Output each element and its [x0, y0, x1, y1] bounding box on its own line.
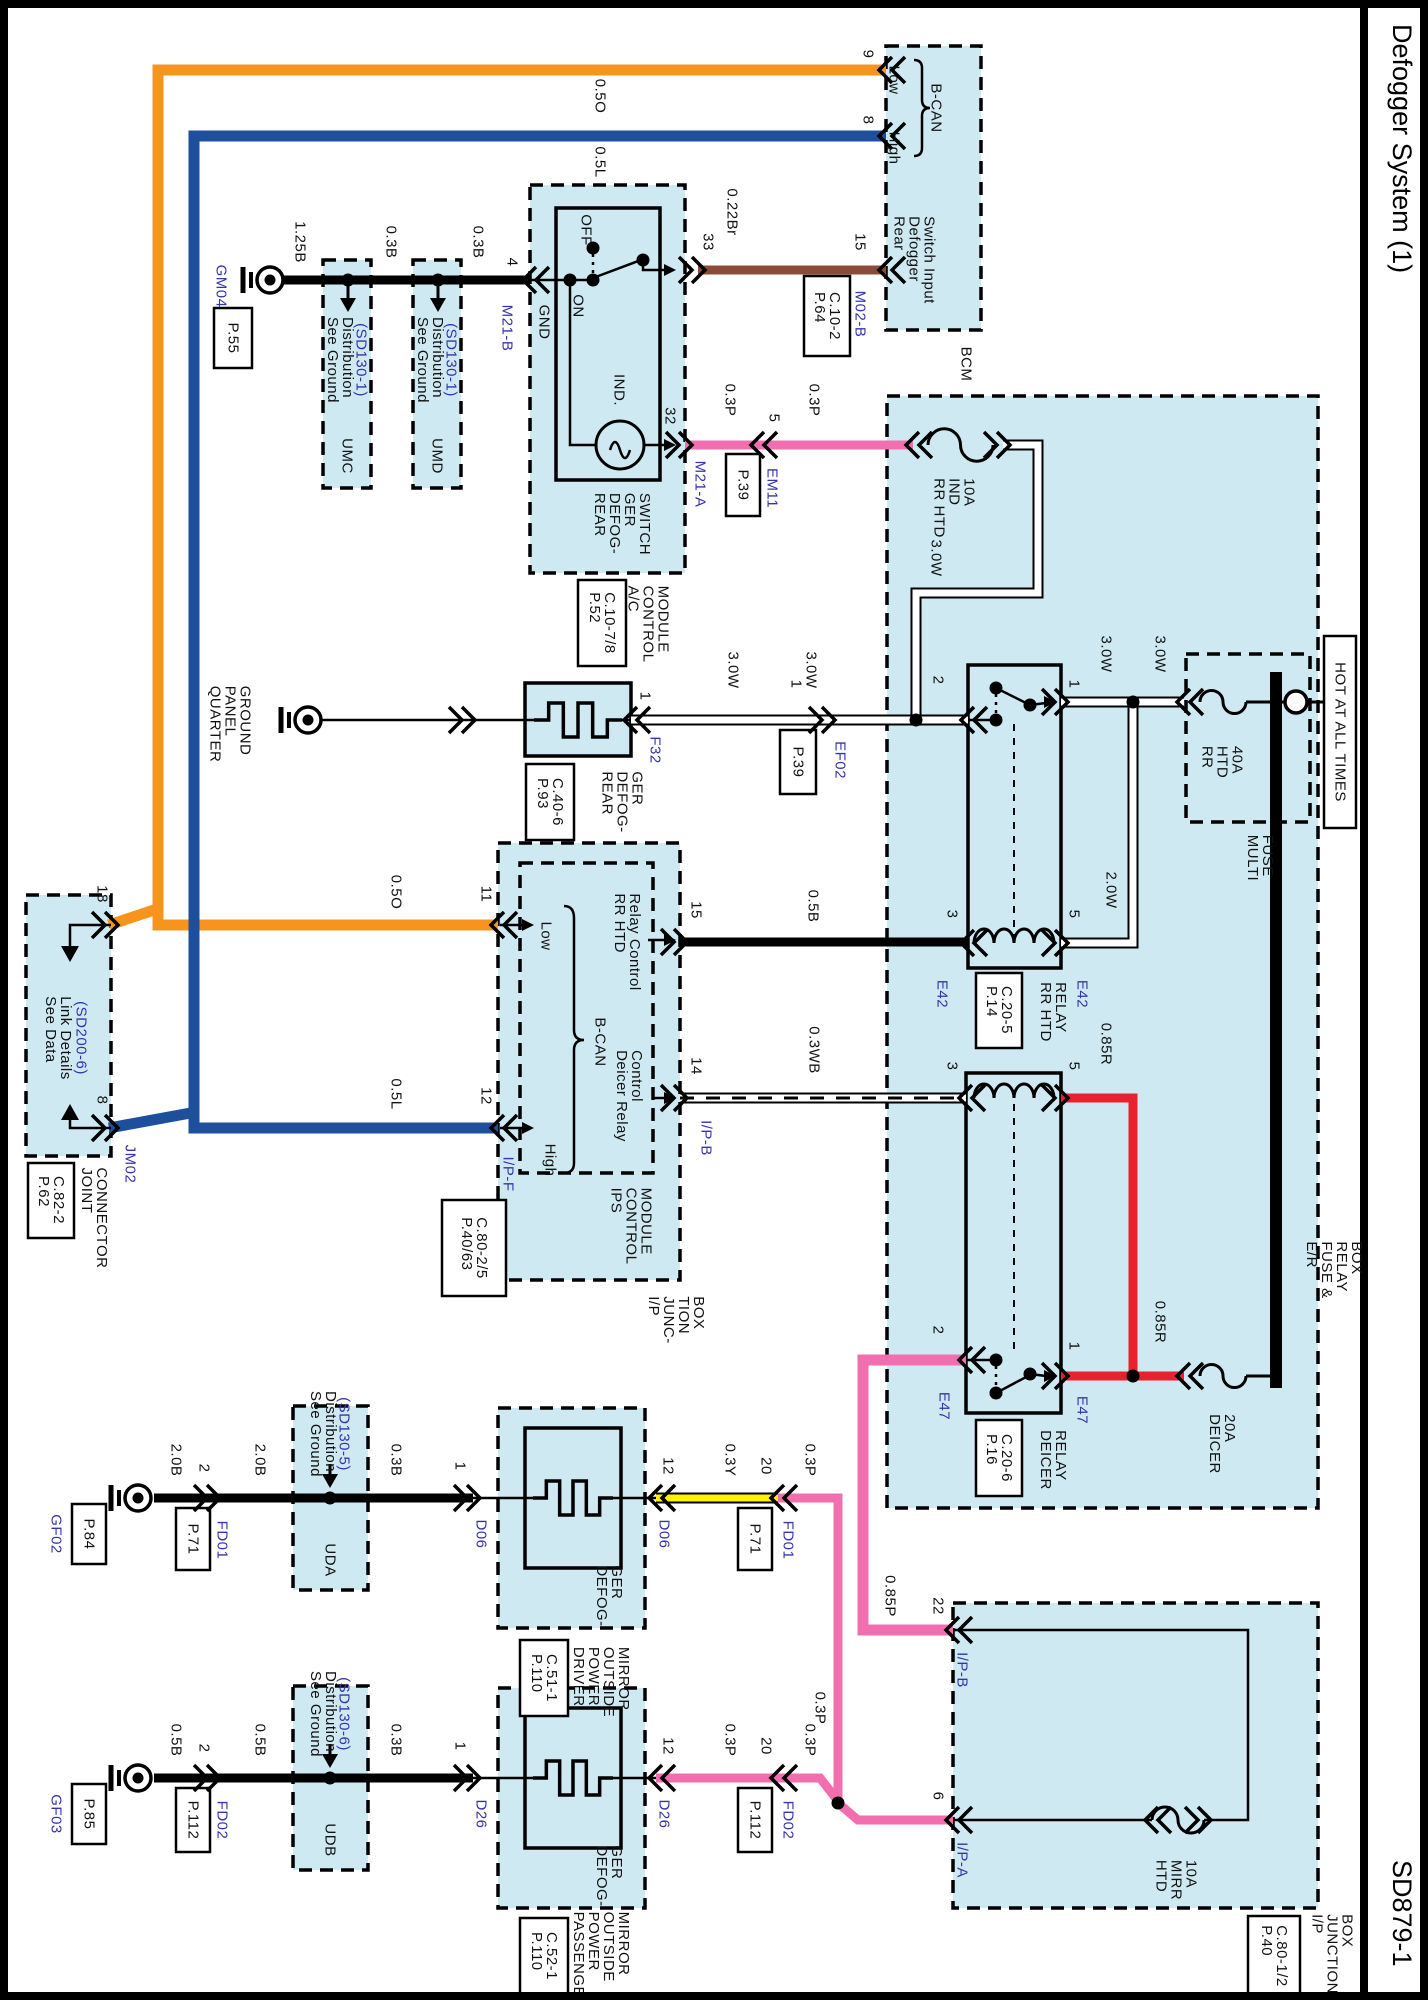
- diagram-label: M21-B: [500, 305, 515, 352]
- diagram-label: BCM: [959, 347, 974, 382]
- junction-dot: [990, 714, 1003, 727]
- diagram-label: GF03: [49, 1794, 64, 1834]
- diagram-label: I/P JUNC- TION BOX: [646, 1296, 706, 1344]
- diagram-label: HOT AT ALL TIMES: [1333, 662, 1348, 802]
- bus-terminal: [1285, 691, 1307, 713]
- diagram-label: 3.0W: [1099, 635, 1114, 672]
- diagram-label: 3.0W: [1153, 635, 1168, 672]
- diagram-label: 12: [661, 1737, 676, 1755]
- diagram-label: 20: [759, 1457, 774, 1475]
- ip-junction-box-2: [953, 1603, 1318, 1908]
- diagram-label: 8: [861, 116, 876, 125]
- diagram-label: 0.5B: [806, 890, 821, 923]
- diagram-label: GM04: [214, 265, 229, 308]
- diagram-label: See Ground Distribution: [308, 1391, 338, 1477]
- diagram-label: 2: [931, 676, 946, 685]
- junction-dot: [1127, 1370, 1140, 1383]
- diagram-label: 3.0W: [929, 539, 944, 576]
- diagram-label: UMC: [340, 438, 355, 474]
- diagram-label: FD02: [781, 1801, 796, 1840]
- diagram-label: 0.85R: [1099, 1023, 1114, 1066]
- diagram-label: (SD130-5): [337, 1397, 352, 1471]
- diagram-label: EF02: [833, 741, 848, 779]
- diagram-label: 6: [931, 1792, 946, 1801]
- diagram-label: E42: [1075, 980, 1090, 1008]
- diagram-label: 0.3B: [389, 1724, 404, 1757]
- diagram-label: IPS CONTROL MODULE: [609, 1188, 654, 1265]
- diagram-label: P.39: [791, 747, 806, 778]
- diagram-label: 5: [1067, 910, 1082, 919]
- diagram-label: 0.3P: [813, 1692, 828, 1725]
- er-fuse-relay-box: [887, 396, 1318, 1508]
- diagram-label: P.110 C.52-1: [529, 1932, 559, 1980]
- diagram-label: 3: [945, 910, 960, 919]
- junction-dot: [342, 274, 355, 287]
- diagram-label: B-CAN: [593, 1017, 608, 1066]
- diagram-label: RR HTD Relay Control: [612, 893, 642, 990]
- diagram-label: EM11: [765, 468, 780, 508]
- diagram-label: REAR DEFOG- GER SWITCH: [592, 493, 652, 555]
- diagram-label: See Ground Distribution: [308, 1671, 338, 1757]
- diagram-label: 3: [945, 1062, 960, 1071]
- diagram-label: 20: [759, 1737, 774, 1755]
- diagram-label: PASSENGER POWER OUTSIDE MIRROR: [571, 1912, 631, 2000]
- diagram-label: 0.3B: [384, 226, 399, 259]
- diagram-label: 1: [453, 1742, 468, 1751]
- diagram-label: 1.25B: [293, 221, 308, 263]
- diagram-label: P.14 C.20-5: [984, 986, 1014, 1034]
- diagram-label: P.71: [186, 1524, 201, 1555]
- diagram-label: (SD130-1): [444, 323, 459, 397]
- junction-dot: [1024, 699, 1037, 712]
- diagram-label: (SD130-1): [354, 323, 369, 397]
- diagram-label: UMD: [430, 438, 445, 474]
- diagram-label: 0.3B: [389, 1444, 404, 1477]
- diagram-label: P.112: [186, 1801, 201, 1840]
- diagram-label: 0.5L: [593, 146, 608, 177]
- diagram-label: I/P-F: [501, 1157, 516, 1192]
- diagram-label: P.85: [82, 1799, 97, 1830]
- ground-quarter-panel-dot: [303, 715, 314, 726]
- diagram-label: 0.5B: [169, 1724, 184, 1757]
- diagram-label: 3.0W: [726, 651, 741, 688]
- diagram-label: See Data Link Details: [43, 996, 73, 1080]
- diagram-label: 1: [789, 680, 804, 689]
- diagram-label: See Ground Distribution: [325, 317, 355, 403]
- diagram-label: RR HTD IND 10A: [932, 478, 977, 538]
- diagram-label: FD01: [781, 1521, 796, 1560]
- diagram-label: DEFOG- GER: [594, 1845, 624, 1906]
- diagram-label: 2.0B: [169, 1444, 184, 1477]
- diagram-label: RR HTD RELAY: [1038, 982, 1068, 1042]
- diagram-label: 5: [1067, 1062, 1082, 1071]
- ground-gf03-dot: [133, 1773, 144, 1784]
- diagram-label: 2: [197, 1464, 212, 1473]
- diagram-label: P.71: [748, 1524, 763, 1555]
- junction-dot: [432, 274, 445, 287]
- diagram-label: 1: [453, 1462, 468, 1471]
- diagram-label: 2: [931, 1326, 946, 1335]
- diagram-label: P.39: [736, 470, 751, 501]
- diagram-label: 9: [861, 50, 876, 59]
- diagram-label: P.16 C.20-6: [984, 1434, 1014, 1482]
- diagram-label: E47: [1075, 1396, 1090, 1424]
- junction-dot: [564, 274, 577, 287]
- diagram-label: 2: [197, 1744, 212, 1753]
- diagram-label: 12: [661, 1457, 676, 1475]
- diagram-label: 1: [1067, 1342, 1082, 1351]
- diagram-label: (SD130-6): [337, 1677, 352, 1751]
- diagram-label: DRIVER POWER OUTSIDE MIRROR: [571, 1647, 631, 1717]
- junction-dot: [587, 274, 600, 287]
- diagram-label: 18: [95, 885, 110, 903]
- diagram-label: Rear Defogger Switch Input: [892, 216, 937, 304]
- junction-dot: [990, 1354, 1003, 1367]
- diagram-label: P.62 C.82-2: [36, 1176, 66, 1224]
- diagram-label: (SD200-6): [74, 1001, 89, 1075]
- diagram-label: P.55: [226, 323, 241, 354]
- diagram-label: 0.3Y: [723, 1444, 738, 1477]
- diagram-label: HTD MIRR 10A: [1154, 1860, 1199, 1900]
- diagram-label: M02-B: [853, 291, 868, 338]
- diagram-label: DEICER RELAY: [1038, 1430, 1068, 1490]
- diagram-label: 0.3B: [471, 226, 486, 259]
- wiring-diagram-page: Defogger System (1) SD879-1 0.5O0.5L9815…: [0, 0, 1428, 2000]
- diagram-label: Deicer Relay Control: [614, 1050, 644, 1142]
- diagram-label: DEICER 20A: [1207, 1414, 1237, 1474]
- diagram-label: 1: [1067, 680, 1082, 689]
- diagram-label: DEFOG- GER: [594, 1565, 624, 1626]
- diagram-label: Low: [887, 65, 902, 94]
- junction-dot: [637, 254, 650, 267]
- diagram-label: 2.0W: [1104, 871, 1119, 908]
- diagram-label: QUARTER PANEL GROUND: [208, 686, 253, 763]
- diagram-label: 15: [853, 233, 868, 251]
- junction-dot: [324, 1492, 337, 1505]
- diagram-label: 11: [479, 886, 494, 903]
- diagram-label: E47: [937, 1392, 952, 1420]
- diagram-label: F32: [648, 736, 663, 763]
- diagram-label: I/P-B: [699, 1120, 714, 1156]
- title-divider: [1360, 8, 1368, 2000]
- junction-dot: [910, 714, 923, 727]
- junction-dot: [832, 1797, 845, 1810]
- can-high-blue-branch: [109, 1112, 196, 1128]
- diagram-label: 22: [931, 1597, 946, 1615]
- diagram-label: MULTI FUSE: [1245, 835, 1275, 881]
- diagram-label: P.112: [748, 1801, 763, 1840]
- diagram-label: OFF: [579, 214, 594, 246]
- diagram-label: Low: [539, 921, 554, 950]
- diagram-label: GND: [537, 305, 552, 340]
- junction-dot: [1127, 696, 1140, 709]
- diagram-label: 0.5L: [389, 1078, 404, 1109]
- diagram-label: See Ground Distribution: [415, 317, 445, 403]
- junction-dot: [324, 1772, 337, 1785]
- diagram-label: 0.3P: [803, 1444, 818, 1477]
- diagram-label: 0.3P: [803, 1724, 818, 1757]
- diagram-label: RR HTD 40A: [1200, 746, 1245, 778]
- diagram-label: FD02: [215, 1801, 230, 1840]
- diagram-label: JOINT CONNECTOR: [79, 1168, 109, 1269]
- diagram-label: 4: [505, 258, 520, 267]
- diagram-label: 0.3P: [723, 384, 738, 417]
- diagram-label: IND.: [612, 374, 627, 406]
- junction-dot: [990, 682, 1003, 695]
- diagram-label: P.64 C.10-2: [812, 292, 842, 340]
- diagram-label: ON: [571, 294, 586, 318]
- diagram-label: 5: [767, 414, 782, 423]
- diagram-label: E/R FUSE & RELAY BOX: [1304, 1241, 1364, 1298]
- diagram-label: 3.0W: [804, 651, 819, 688]
- bus-bar: [1270, 672, 1282, 1388]
- diagram-label: D26: [474, 1799, 489, 1828]
- diagram-label: P.52 C.10-7/8: [587, 592, 617, 654]
- diagram-label: 12: [479, 1087, 494, 1105]
- diagram-label: UDB: [323, 1823, 338, 1856]
- diagram-label: A/C CONTROL MODULE: [626, 586, 671, 663]
- diagram-label: I/P-A: [955, 1842, 970, 1878]
- diagram-label: 1: [638, 692, 653, 701]
- diagram-label: 0.5O: [389, 875, 404, 910]
- doc-code: SD879-1: [1386, 1860, 1417, 1967]
- diagram-label: 0.5B: [253, 1724, 268, 1757]
- diagram-label: 33: [701, 233, 716, 251]
- diagram-label: 0.3P: [723, 1724, 738, 1757]
- ground-gf02-dot: [133, 1493, 144, 1504]
- diagram-label: UDA: [323, 1543, 338, 1576]
- diagram-label: P.40 C.80-1/2: [1259, 1925, 1289, 1987]
- diagram-label: High: [543, 1144, 558, 1177]
- diagram-label: I/P JUNCTION BOX: [1310, 1914, 1355, 1994]
- diagram-label: I/P-B: [955, 1652, 970, 1688]
- diagram-label: 32: [663, 407, 678, 425]
- diagram-label: M21-A: [693, 461, 708, 508]
- diagram-label: D06: [657, 1519, 672, 1548]
- diagram-label: P.110 C.51-1: [529, 1654, 559, 1702]
- diagram-label: GF02: [49, 1514, 64, 1554]
- diagram-label: D26: [657, 1799, 672, 1828]
- diagram-label: 15: [689, 901, 704, 919]
- diagram-label: 0.5O: [593, 79, 608, 114]
- diagram-label: 0.3P: [807, 384, 822, 417]
- diagram-label: P.40/63 C.80-2/5: [459, 1217, 489, 1279]
- junction-dot: [990, 1387, 1003, 1400]
- diagram-label: 8: [95, 1096, 110, 1105]
- diagram-label: D06: [474, 1519, 489, 1548]
- page-title: Defogger System (1): [1386, 24, 1417, 273]
- diagram-label: 14: [689, 1057, 704, 1075]
- diagram-label: P.84: [82, 1519, 97, 1550]
- ground-gm04-dot: [265, 275, 276, 286]
- diagram-label: High: [887, 132, 902, 165]
- diagram-label: 0.22Br: [725, 188, 740, 235]
- diagram-label: FD01: [215, 1521, 230, 1560]
- diagram-label: 0.85P: [883, 1575, 898, 1617]
- diagram-label: 0.3WB: [807, 1026, 822, 1074]
- diagram-label: 0.85R: [1153, 1301, 1168, 1344]
- diagram-label: B-CAN: [929, 83, 944, 132]
- diagram-label: P.93 C.40-6: [535, 778, 565, 826]
- diagram-label: JM02: [123, 1145, 138, 1184]
- diagram-label: REAR DEFOG- GER: [600, 771, 645, 832]
- junction-dot: [1024, 1368, 1037, 1381]
- diagram-label: E42: [935, 980, 950, 1008]
- diagram-label: 2.0B: [253, 1444, 268, 1477]
